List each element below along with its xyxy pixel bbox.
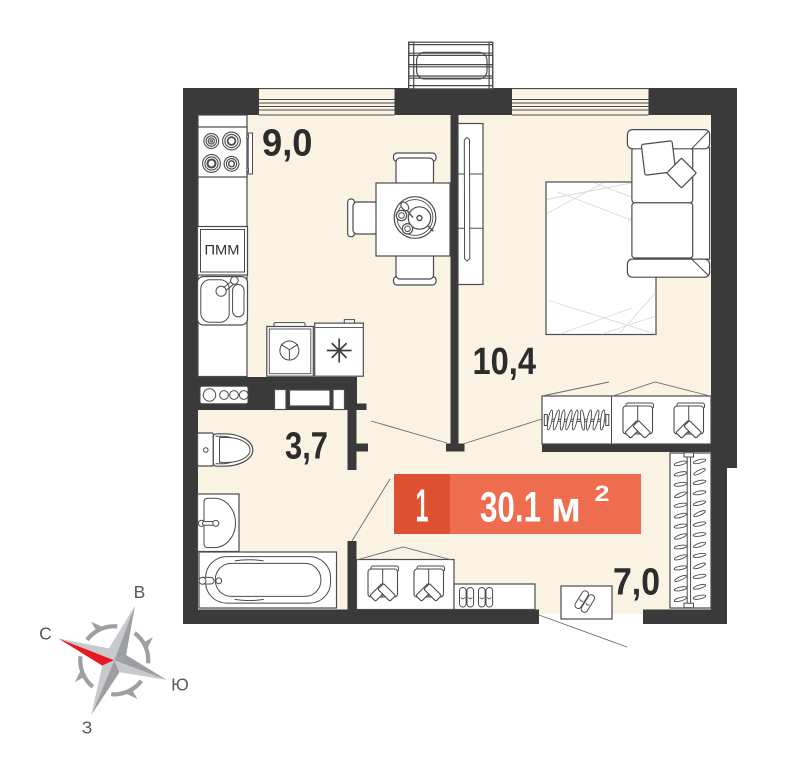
svg-text:Ю: Ю (171, 675, 189, 695)
svg-text:В: В (134, 582, 146, 602)
svg-text:3,7: 3,7 (285, 426, 328, 468)
svg-text:С: С (39, 624, 52, 644)
svg-text:30.1: 30.1 (480, 484, 541, 532)
svg-text:9,0: 9,0 (262, 123, 313, 165)
svg-text:З: З (82, 718, 93, 738)
svg-text:1: 1 (416, 480, 429, 532)
svg-text:м: м (551, 484, 581, 532)
svg-text:ПММ: ПММ (205, 243, 240, 258)
svg-text:10,4: 10,4 (473, 341, 537, 383)
svg-text:7,0: 7,0 (613, 562, 660, 604)
svg-text:2: 2 (595, 481, 610, 506)
